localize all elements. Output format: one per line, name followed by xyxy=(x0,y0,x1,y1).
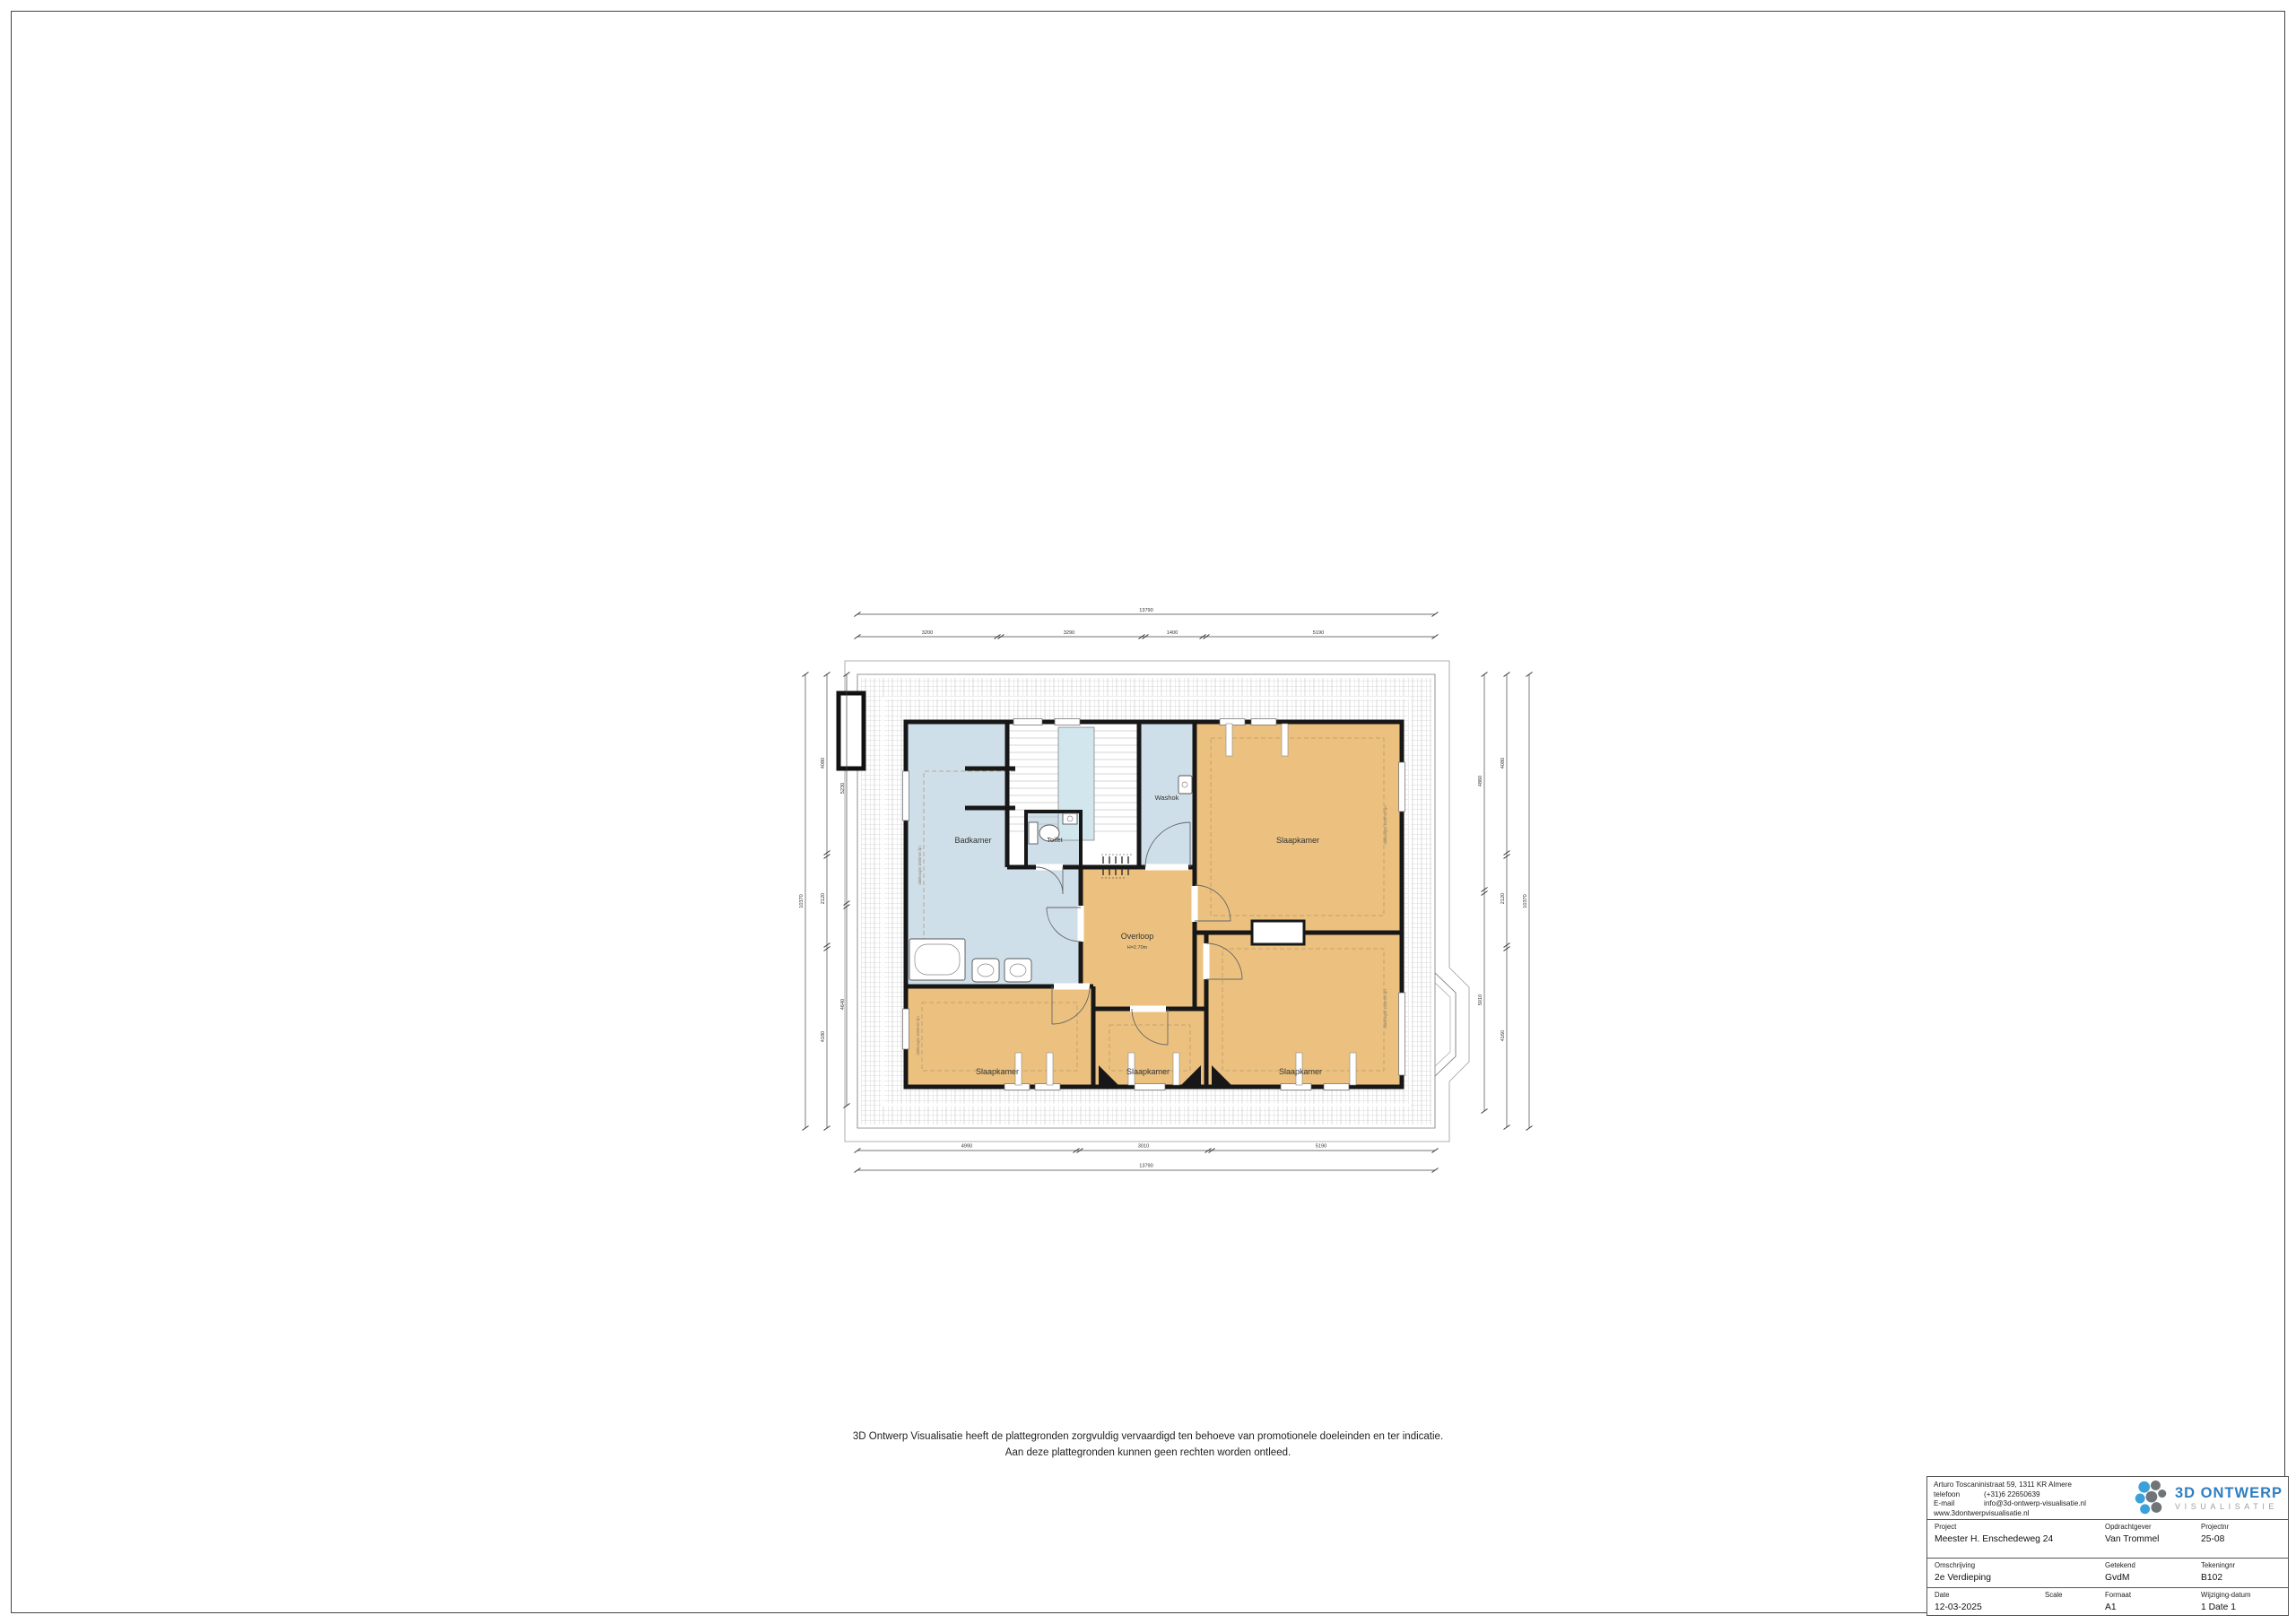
logo-text-line1: 3D ONTWERP xyxy=(2175,1486,2283,1501)
dim-right-inner-0: 4860 xyxy=(1478,776,1483,786)
bay-window xyxy=(1435,973,1456,1076)
getekend-field: Getekend GvdM xyxy=(2105,1561,2135,1583)
knee-line-label-tr: dakhoogte 1500mm lijn xyxy=(1383,805,1387,845)
logo-circles-icon xyxy=(2133,1480,2169,1517)
email-value: info@3d-ontwerp-visualisatie.nl xyxy=(1984,1499,2086,1507)
dim-top-seg-3: 5190 xyxy=(1313,630,1324,636)
dim-bottom-total: 13790 xyxy=(1139,1164,1153,1169)
washok-sink xyxy=(1178,776,1192,794)
sink-right xyxy=(1004,959,1031,982)
title-block-header: Arturo Toscaninistraat 59, 1311 KR Almer… xyxy=(1927,1477,2288,1520)
chimney xyxy=(839,693,864,769)
scale-field: Scale xyxy=(2045,1591,2063,1602)
sink-left xyxy=(972,959,999,982)
disclaimer: 3D Ontwerp Visualisatie heeft de platteg… xyxy=(0,1429,2296,1462)
formaat-field: Formaat A1 xyxy=(2105,1591,2131,1612)
room-fills xyxy=(906,722,1402,1087)
dim-top-seg-0: 3200 xyxy=(922,630,933,636)
floor-plan-svg: Badkamer Toilet Washok Slaapkamer Overlo… xyxy=(789,587,1543,1206)
room-label-overloop: Overloop xyxy=(1121,932,1154,941)
project-field: Project Meester H. Enschedeweg 24 xyxy=(1935,1523,2053,1544)
bedroom-tr-floor xyxy=(1195,722,1402,933)
dim-bottom-seg-1: 3010 xyxy=(1138,1144,1149,1150)
bathtub xyxy=(909,939,965,980)
dim-left-outer-total: 10370 xyxy=(799,894,804,908)
room-label-overloop-height: H=2.70m xyxy=(1127,945,1148,951)
room-label-slaapkamer-bc: Slaapkamer xyxy=(1126,1067,1170,1076)
title-block-row-omschrijving: Omschrijving 2e Verdieping Getekend GvdM… xyxy=(1927,1559,2288,1588)
toilet-sink xyxy=(1063,813,1077,824)
dim-left-mid-0: 4080 xyxy=(821,758,826,769)
tekeningnr-field: Tekeningnr B102 xyxy=(2201,1561,2235,1583)
dim-right-mid-2: 4160 xyxy=(1500,1030,1506,1041)
knee-line-label-br: dakhoogte 1500mm lijn xyxy=(1383,989,1387,1029)
room-label-toilet: Toilet xyxy=(1047,836,1063,844)
dim-right-outer-total: 10370 xyxy=(1523,894,1528,908)
room-label-badkamer: Badkamer xyxy=(954,836,991,845)
dim-left-mid-1: 2120 xyxy=(821,893,826,904)
address-line: Arturo Toscaninistraat 59, 1311 KR Almer… xyxy=(1934,1481,2086,1490)
dim-left-mid-2: 4180 xyxy=(821,1031,826,1042)
company-address: Arturo Toscaninistraat 59, 1311 KR Almer… xyxy=(1934,1481,2086,1519)
wijziging-field: Wijziging-datum 1 Date 1 xyxy=(2201,1591,2250,1612)
dim-right-mid-1: 2120 xyxy=(1500,893,1506,904)
dim-bottom-seg-2: 5190 xyxy=(1316,1144,1326,1150)
date-field: Date 12-03-2025 xyxy=(1935,1591,1982,1612)
drawing-sheet: Badkamer Toilet Washok Slaapkamer Overlo… xyxy=(0,0,2296,1624)
dim-left-inner-0: 5230 xyxy=(840,783,846,794)
room-label-slaapkamer-bl: Slaapkamer xyxy=(976,1067,1019,1076)
phone-label: telefoon xyxy=(1934,1490,1984,1500)
wc-tank xyxy=(1029,822,1038,844)
knee-line-label-badkamer: dakhoogte 1500mm lijn xyxy=(918,846,922,885)
dim-top-seg-1: 3290 xyxy=(1064,630,1074,636)
website: www.3dontwerpvisualisatie.nl xyxy=(1934,1509,2086,1519)
projectnr-field: Projectnr 25-08 xyxy=(2201,1523,2229,1544)
closet-nook xyxy=(1252,921,1304,944)
omschrijving-field: Omschrijving 2e Verdieping xyxy=(1935,1561,1991,1583)
dim-left-inner-1: 4640 xyxy=(840,999,846,1010)
dim-right-inner-1: 5010 xyxy=(1478,994,1483,1005)
room-label-slaapkamer-tr: Slaapkamer xyxy=(1276,836,1319,845)
logo-text-line2: VISUALISATIE xyxy=(2175,1503,2283,1511)
dim-top-seg-2: 1400 xyxy=(1167,630,1178,636)
dim-top-total: 13790 xyxy=(1139,608,1153,613)
email-label: E-mail xyxy=(1934,1499,1984,1509)
title-block: Arturo Toscaninistraat 59, 1311 KR Almer… xyxy=(1926,1476,2289,1616)
knee-line-label-bl: dakhoogte 1500mm lijn xyxy=(916,1016,920,1055)
company-logo: 3D ONTWERP VISUALISATIE xyxy=(2133,1480,2283,1517)
title-block-row-date: Date 12-03-2025 Scale Formaat A1 Wijzigi… xyxy=(1927,1588,2288,1614)
opdrachtgever-field: Opdrachtgever Van Trommel xyxy=(2105,1523,2159,1544)
room-label-washok: Washok xyxy=(1155,794,1179,802)
title-block-row-project: Project Meester H. Enschedeweg 24 Opdrac… xyxy=(1927,1520,2288,1559)
disclaimer-line-1: 3D Ontwerp Visualisatie heeft de platteg… xyxy=(0,1429,2296,1446)
phone-value: (+31)6 22650639 xyxy=(1984,1490,2040,1498)
dim-bottom-seg-0: 4990 xyxy=(961,1144,972,1150)
disclaimer-line-2: Aan deze plattegronden kunnen geen recht… xyxy=(0,1446,2296,1462)
room-label-slaapkamer-br: Slaapkamer xyxy=(1279,1067,1322,1076)
dim-right-mid-0: 4080 xyxy=(1500,758,1506,769)
